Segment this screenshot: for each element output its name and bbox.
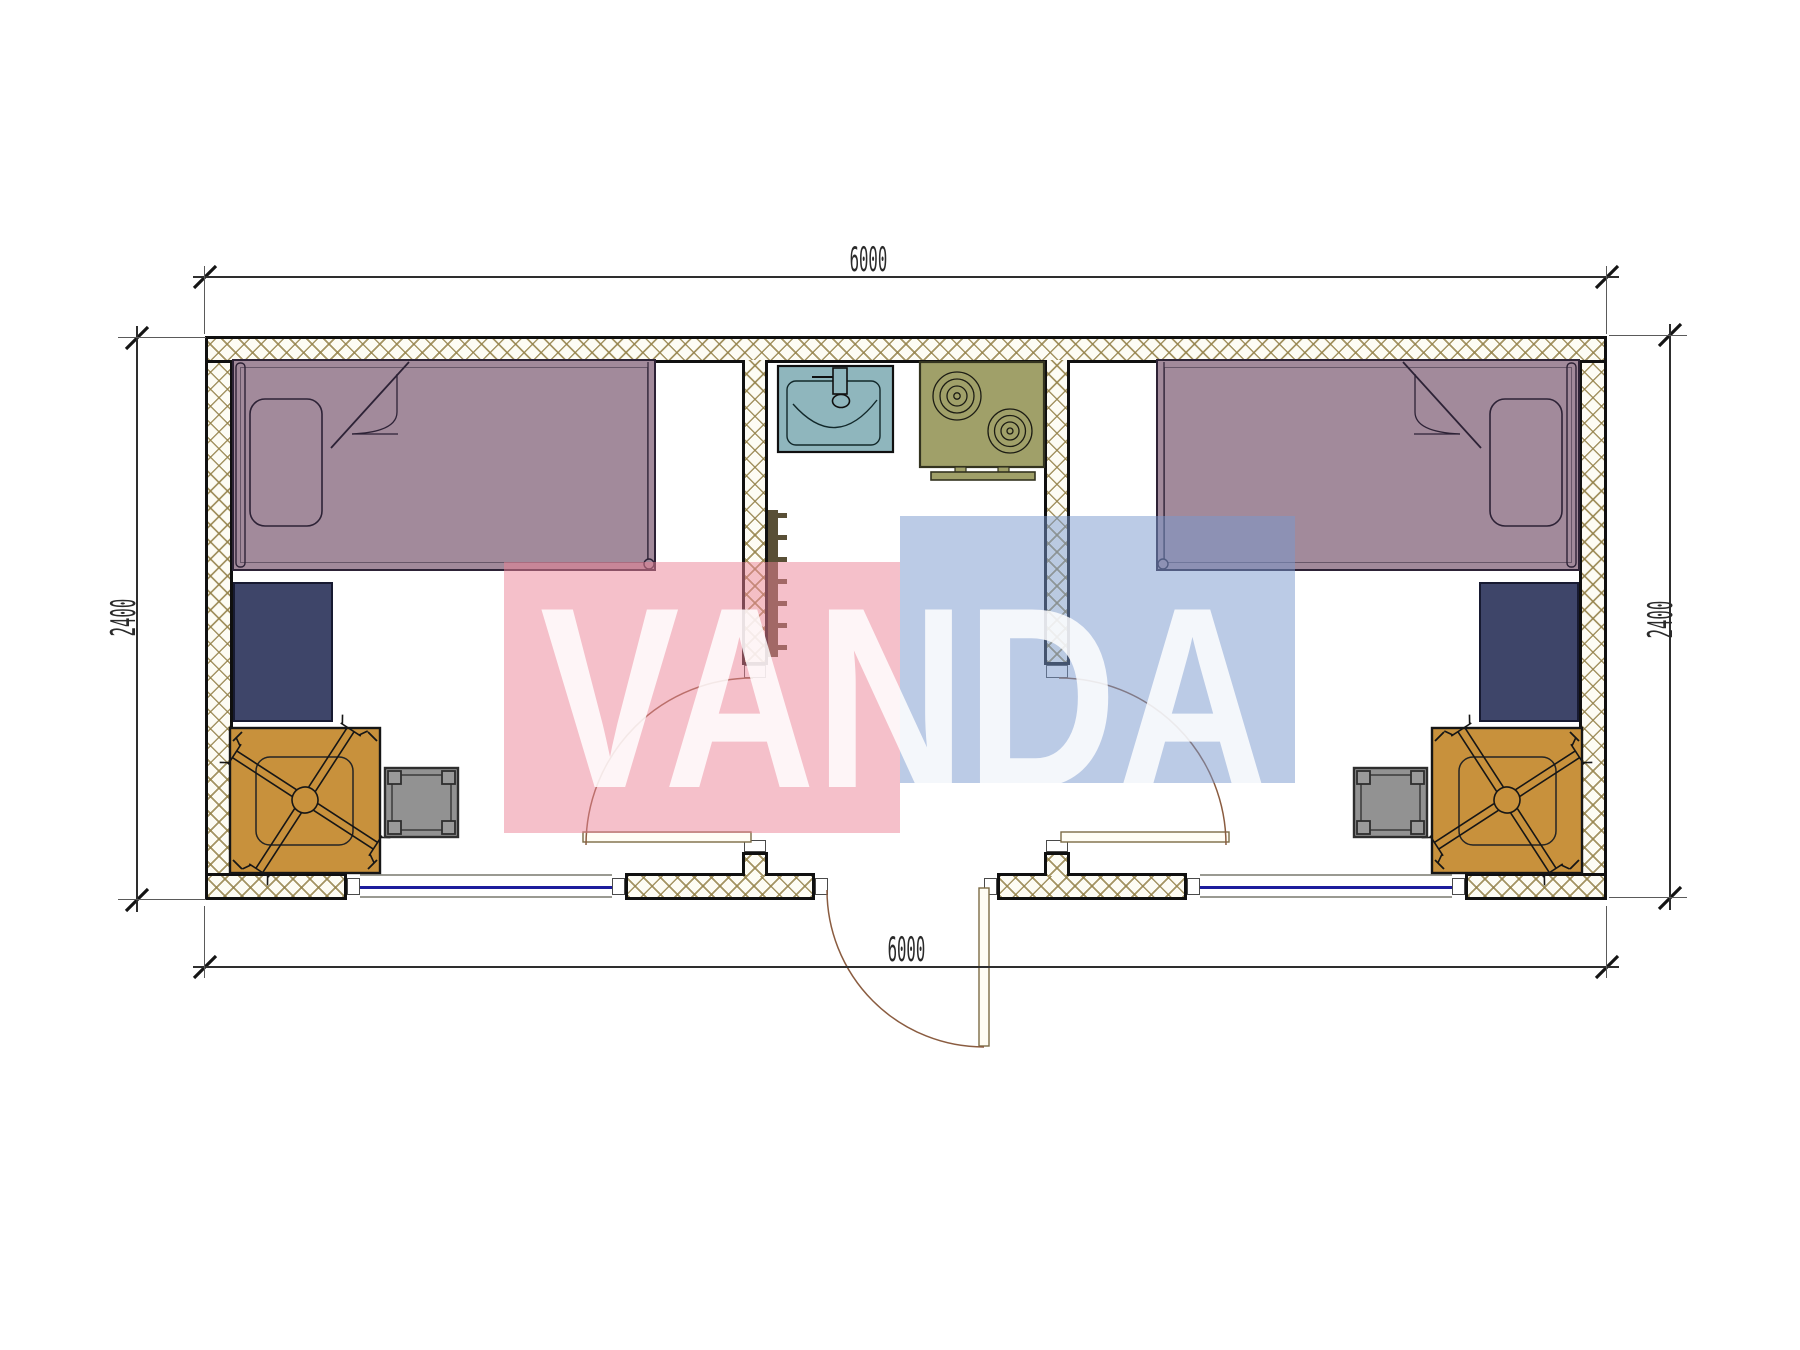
dim-label-bottom: 6000 — [888, 930, 925, 970]
dim-line-top — [193, 276, 1619, 278]
dim-label-right: 2400 — [1641, 602, 1681, 639]
ext-line-right-bottom — [1609, 897, 1687, 898]
ext-line-bottom-left — [204, 906, 205, 978]
watermark-text-layer: VANDA — [0, 0, 1800, 1350]
dim-label-top: 6000 — [850, 240, 887, 280]
ext-line-right-top — [1609, 335, 1687, 336]
ext-line-bottom-right — [1606, 906, 1607, 978]
watermark-text: VANDA — [540, 553, 1268, 842]
ext-line-left-bottom — [118, 899, 206, 900]
ext-line-top-left — [204, 266, 205, 334]
dim-label-left: 2400 — [104, 600, 144, 637]
floor-plan-canvas: VANDA 6000 6000 2400 2400 — [0, 0, 1800, 1350]
ext-line-left-top — [118, 337, 206, 338]
ext-line-top-right — [1606, 266, 1607, 334]
